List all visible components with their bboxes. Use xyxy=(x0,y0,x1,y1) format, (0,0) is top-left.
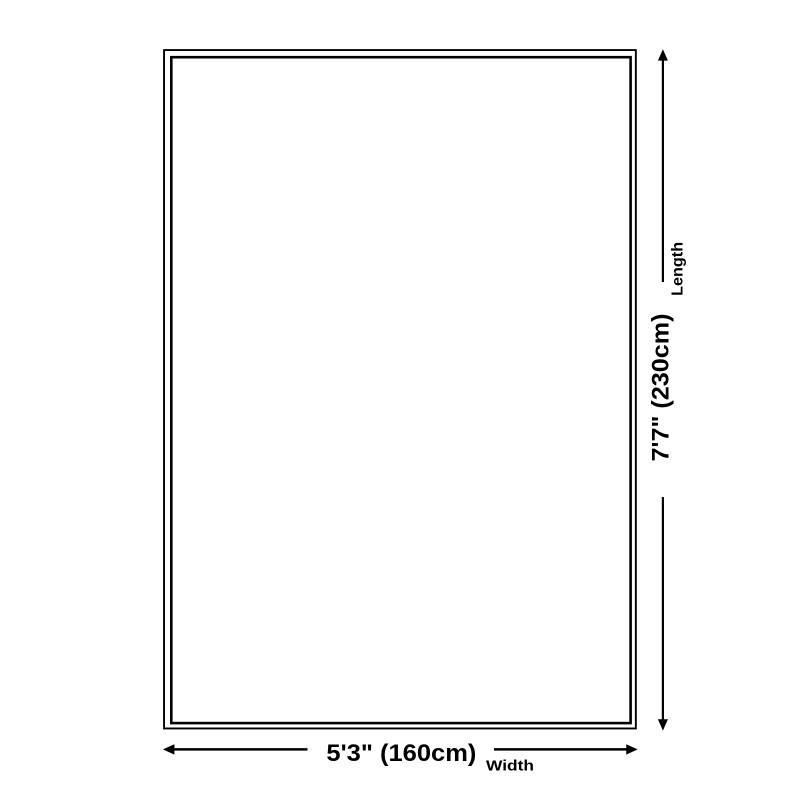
svg-text:Length: Length xyxy=(669,242,686,296)
svg-text:7'7" (230cm): 7'7" (230cm) xyxy=(648,314,675,462)
svg-text:5'3" (160cm): 5'3" (160cm) xyxy=(326,740,476,767)
svg-text:Width: Width xyxy=(486,759,534,775)
